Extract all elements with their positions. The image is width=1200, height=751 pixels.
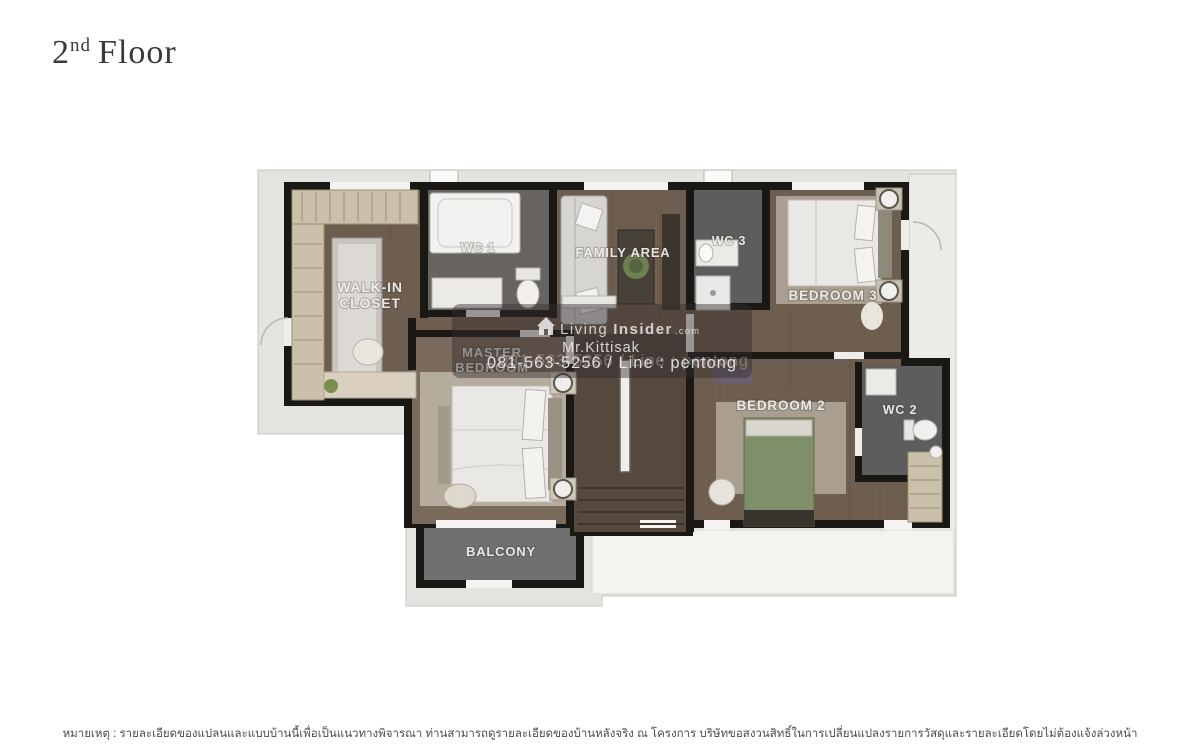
wc1-label: WC 1	[461, 241, 495, 255]
bedroom3-label: BEDROOM 3	[789, 288, 878, 303]
floor-plan-drawing: WALK-IN CLOSET WC 1 FAMILY AREA WC 3 BED…	[0, 0, 1200, 751]
lower-roof-terrace	[592, 530, 954, 594]
brand-living: Living	[560, 321, 608, 338]
walk-in-closet-label2: CLOSET	[339, 295, 401, 311]
watermark: LivingInsider.com Mr.Kittisak 081-563-52…	[452, 304, 752, 378]
watermark-contact: 081-563-5256 / Line : pentong	[487, 354, 737, 372]
brand-tld: .com	[675, 326, 701, 336]
family-area-label: FAMILY AREA	[575, 245, 670, 260]
master-bedroom-furniture	[420, 372, 576, 508]
wc3-label: WC 3	[712, 234, 746, 248]
brand-insider: Insider	[613, 321, 673, 338]
balcony-bottom-window	[466, 580, 512, 588]
floor-plan-page: 2ndFloor	[0, 0, 1200, 751]
bedroom2-label: BEDROOM 2	[737, 398, 826, 413]
footer-disclaimer: หมายเหตุ : รายละเอียดของแปลนและแบบบ้านนี…	[0, 725, 1200, 743]
walk-in-closet-label: WALK-IN	[337, 279, 402, 295]
balcony-label: BALCONY	[466, 544, 536, 559]
wc2-label: WC 2	[883, 403, 917, 417]
